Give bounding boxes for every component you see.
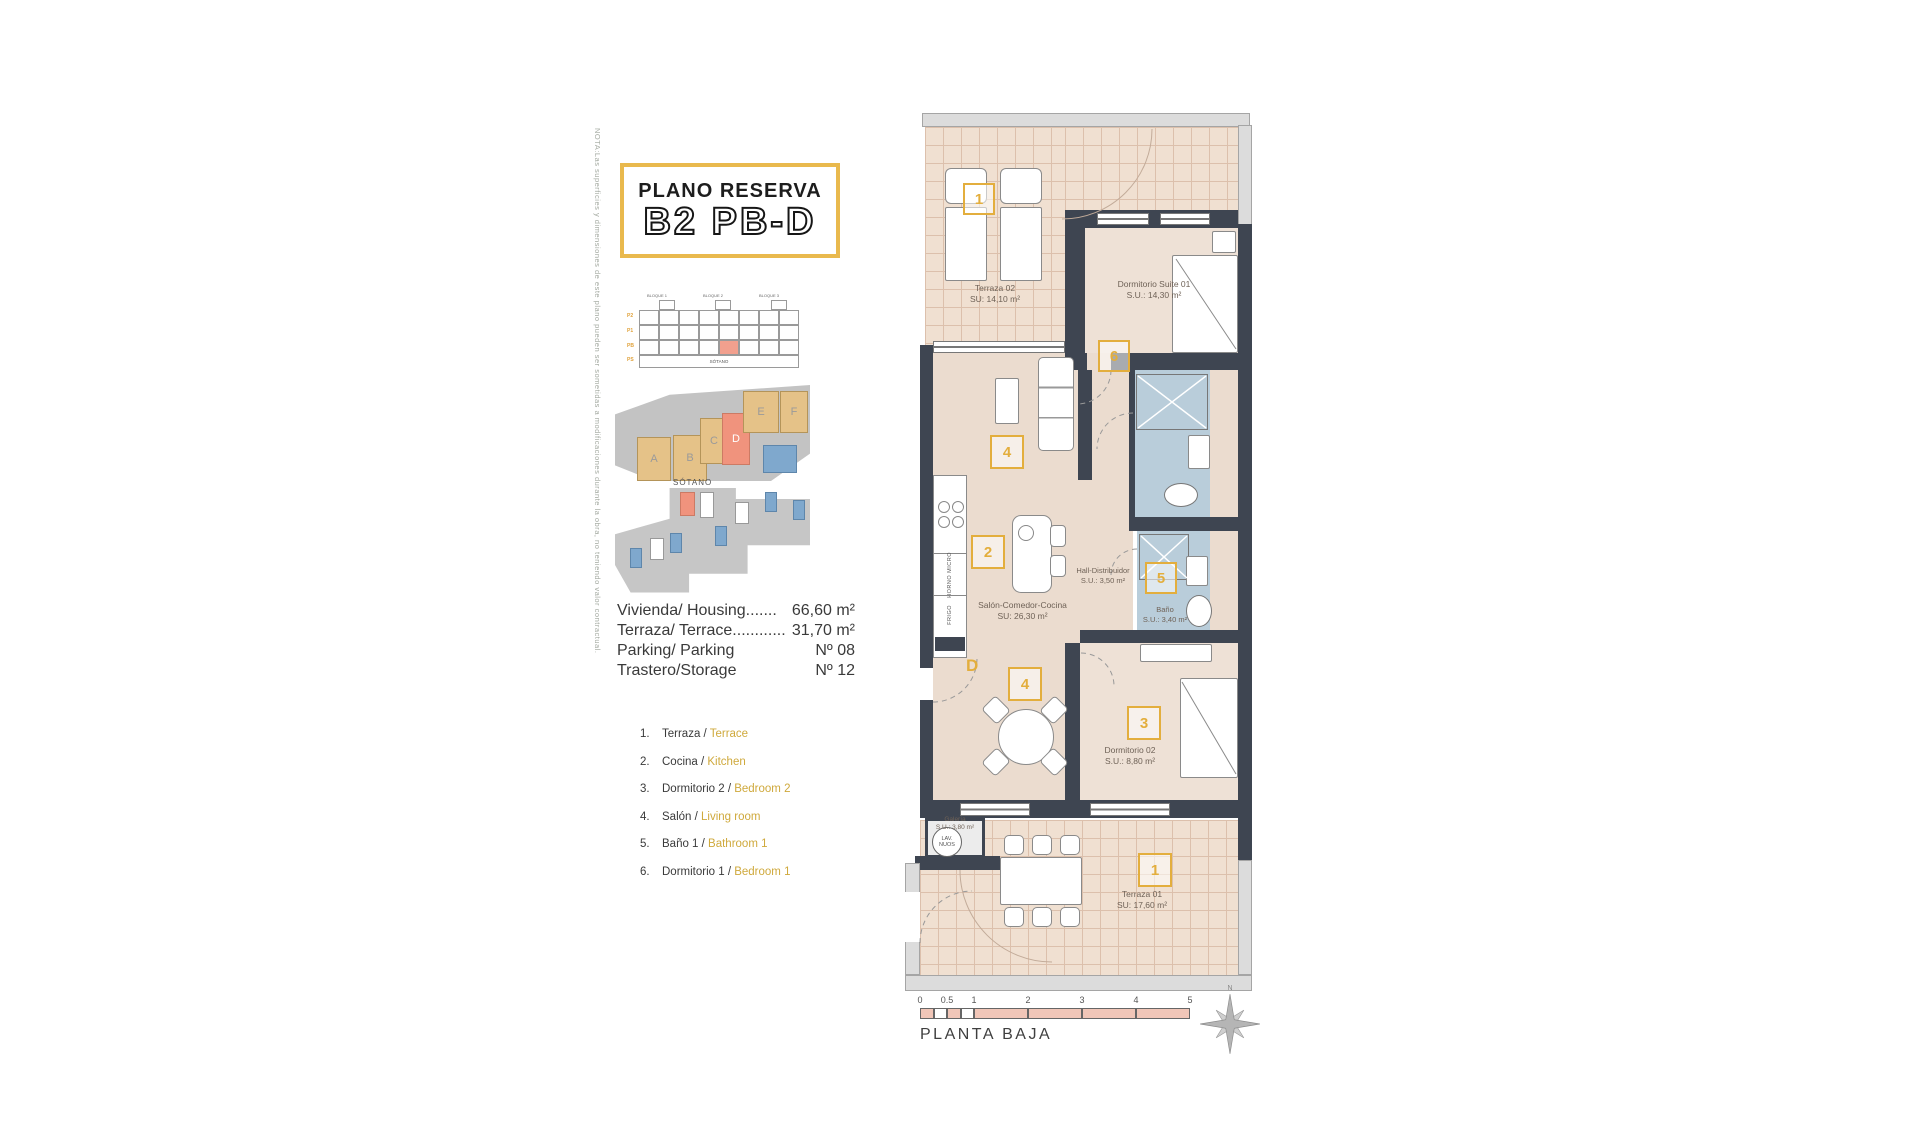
elevation-unit-cell <box>779 340 799 355</box>
elevation-unit-cell <box>659 340 679 355</box>
wall-right <box>1238 224 1252 860</box>
terrace-chair <box>1032 835 1052 855</box>
kitchen-island <box>1012 515 1052 593</box>
terrace-chair <box>1004 835 1024 855</box>
title-box: PLANO RESERVA B2 PB-D <box>620 163 840 258</box>
elevation-unit-cell <box>639 325 659 340</box>
tag-bath: 5 <box>1145 562 1177 594</box>
scale-tick-label: 2 <box>1025 995 1030 1005</box>
entrance-door-label: D <box>966 656 978 676</box>
info-row: Parking/ ParkingNº 08 <box>617 641 855 661</box>
legend-item: 6.Dormitorio 1 / Bedroom 1 <box>640 866 850 878</box>
wall-galeria <box>915 856 1000 870</box>
sink-1 <box>1188 435 1210 469</box>
elevation-unit-cell <box>719 310 739 325</box>
entrance-door-gap <box>920 668 933 700</box>
elevation-diagram: BLOQUE 1BLOQUE 2BLOQUE 3P2P1PBPSSÓTANO <box>625 293 800 373</box>
room-label-dorm02: Dormitorio 02S.U.: 8,80 m² <box>1080 745 1180 767</box>
shower-1 <box>1136 374 1208 430</box>
elevation-unit-cell <box>739 325 759 340</box>
oven-micro-label: HORNO MICRO <box>933 553 967 596</box>
sun-lounger <box>1000 168 1042 204</box>
terrace-parapet-right-upper <box>1238 125 1252 225</box>
suite-bed <box>1172 255 1238 353</box>
info-row: Trastero/StorageNº 12 <box>617 661 855 681</box>
terrace-02-floor-strip <box>1065 127 1238 210</box>
terrace-gate-gap <box>905 892 920 942</box>
scale-tick-label: 0.5 <box>941 995 954 1005</box>
elevation-unit-cell <box>679 310 699 325</box>
wall-hall <box>1078 370 1092 480</box>
tag-terraza01: 1 <box>1138 853 1172 887</box>
elevation-block-label: BLOQUE 3 <box>759 293 779 298</box>
legend-item: 2.Cocina / Kitchen <box>640 756 850 768</box>
micro-label: MICRO <box>947 552 953 573</box>
compass-icon <box>1198 992 1262 1056</box>
elevation-block-label: BLOQUE 2 <box>703 293 723 298</box>
kitchen-cabinet <box>935 637 965 651</box>
wall-bedroom02-left <box>1065 643 1080 800</box>
tag-suite: 6 <box>1098 340 1130 372</box>
room-label-bano: BañoS.U.: 3,40 m² <box>1125 605 1205 625</box>
site-block-f: F <box>780 391 808 433</box>
scale-tick-label: 5 <box>1187 995 1192 1005</box>
terrace-table <box>1000 857 1082 905</box>
unit-code: B2 PB-D <box>643 203 816 241</box>
elevation-block-label: BLOQUE 1 <box>647 293 667 298</box>
compass-north-label: N <box>1198 985 1262 992</box>
suite-closet <box>1212 231 1236 253</box>
dining-window <box>960 803 1030 816</box>
elevation-unit-cell <box>779 310 799 325</box>
legend-item: 1.Terraza / Terrace <box>640 728 850 740</box>
floor-name: PLANTA BAJA <box>920 1026 1052 1044</box>
tag-dorm02: 3 <box>1127 706 1161 740</box>
info-row: Terraza/ Terrace............31,70 m² <box>617 621 855 641</box>
basement-label: SÓTANO <box>673 478 712 487</box>
wall-left <box>920 345 933 818</box>
elevation-basement-cell: SÓTANO <box>639 355 799 368</box>
housing-info: Vivienda/ Housing.......66,60 m²Terraza/… <box>617 601 855 681</box>
scale-segment <box>947 1008 961 1019</box>
legend-item: 3.Dormitorio 2 / Bedroom 2 <box>640 783 850 795</box>
sun-lounger <box>945 207 987 281</box>
elevation-unit-cell <box>739 310 759 325</box>
tag-terraza02: 1 <box>963 183 995 215</box>
living-window <box>933 341 1065 353</box>
room-label-terraza01: Terraza 01SU: 17,60 m² <box>1092 889 1192 911</box>
legend-item: 4.Salón / Living room <box>640 811 850 823</box>
terrace-chair <box>1032 907 1052 927</box>
island-sink <box>1018 525 1034 541</box>
wall-bath-left <box>1129 370 1135 531</box>
room-label-salon: Salón-Comedor-CocinaSU: 26,30 m² <box>955 600 1090 622</box>
suite-window <box>1097 213 1149 225</box>
elevation-unit-cell <box>759 340 779 355</box>
room-label-suite: Dormitorio Suite 01S.U.: 14,30 m² <box>1088 279 1220 301</box>
scale-segment <box>1136 1008 1190 1019</box>
elevation-tower <box>715 300 731 310</box>
elevation-floor-label: PB <box>627 343 634 349</box>
basement-plan: SÓTANO <box>615 478 810 600</box>
terrace-chair <box>1060 907 1080 927</box>
elevation-unit-cell <box>699 340 719 355</box>
terrace-chair <box>1060 835 1080 855</box>
scale-segment <box>920 1008 934 1019</box>
washer-label: NUOS <box>939 842 955 848</box>
elevation-floor-label: P2 <box>627 313 633 319</box>
parking-car <box>670 533 682 553</box>
parking-car <box>715 526 727 546</box>
site-block-a: A <box>637 437 671 481</box>
elevation-unit-cell <box>699 325 719 340</box>
parking-cell <box>735 502 749 524</box>
parking-car <box>765 492 777 512</box>
elevation-unit-cell <box>739 340 759 355</box>
suite-window <box>1160 213 1210 225</box>
tag-dining: 4 <box>1008 667 1042 701</box>
elevation-unit-cell-highlight <box>719 340 739 355</box>
hob-burner <box>952 516 964 528</box>
sink-2 <box>1186 556 1208 586</box>
tag-kitchen: 2 <box>971 535 1005 569</box>
room-label-terraza02: Terraza 02SU: 14,10 m² <box>935 283 1055 305</box>
site-pool <box>763 445 797 473</box>
elevation-unit-cell <box>759 325 779 340</box>
scale-tick-label: 1 <box>971 995 976 1005</box>
wall-suite-left <box>1065 210 1085 370</box>
tv-unit <box>995 378 1019 424</box>
elevation-unit-cell <box>699 310 719 325</box>
scale-segment <box>1082 1008 1136 1019</box>
legend-item: 5.Baño 1 / Bathroom 1 <box>640 838 850 850</box>
bath-side-floor <box>1210 370 1238 643</box>
elevation-tower <box>771 300 787 310</box>
elevation-floor-label: P1 <box>627 328 633 334</box>
bedroom02-closet <box>1140 644 1212 662</box>
fridge-text: FRIGO <box>947 605 953 625</box>
site-block-e: E <box>743 391 779 433</box>
parking-cell <box>700 492 714 518</box>
toilet-1 <box>1164 483 1198 507</box>
bedroom02-window <box>1090 803 1170 816</box>
parking-cell <box>650 538 664 560</box>
site-plan: A B C D E F <box>615 385 810 483</box>
wall-bath-mid <box>1129 517 1238 531</box>
room-label-galeria: GaleríaS.U.: 3,80 m² <box>918 816 992 833</box>
legal-note: NOTA:Las superficies y dimensiones de es… <box>593 128 602 653</box>
elevation-unit-cell <box>659 325 679 340</box>
scale-tick-label: 0 <box>917 995 922 1005</box>
tag-living: 4 <box>990 435 1024 469</box>
bedroom02-bed <box>1180 678 1238 778</box>
scale-tick-label: 4 <box>1133 995 1138 1005</box>
scale-segment <box>974 1008 1028 1019</box>
bar-stool <box>1050 525 1066 547</box>
terrace-parapet-top <box>922 113 1250 127</box>
elevation-unit-cell <box>719 325 739 340</box>
elevation-unit-cell <box>639 310 659 325</box>
elevation-floor-label: PS <box>627 357 634 363</box>
elevation-unit-cell <box>679 325 699 340</box>
compass: N <box>1198 985 1262 1057</box>
sofa <box>1038 357 1074 451</box>
hob-burner <box>938 516 950 528</box>
scale-segment <box>934 1008 948 1019</box>
elevation-unit-cell <box>679 340 699 355</box>
scale-segment <box>1028 1008 1082 1019</box>
hob-burner <box>938 501 950 513</box>
elevation-unit-cell <box>779 325 799 340</box>
hob-burner <box>952 501 964 513</box>
terrace-chair <box>1004 907 1024 927</box>
floor-plan: LAV. NUOS HORNO MICRO FRIGO <box>900 113 1252 993</box>
legend-list: 1.Terraza / Terrace2.Cocina / Kitchen3.D… <box>640 728 850 893</box>
parking-car <box>793 500 805 520</box>
scale-bar: 00.512345 <box>920 995 1192 1025</box>
plan-title: PLANO RESERVA <box>638 180 821 203</box>
scale-segment <box>961 1008 975 1019</box>
elevation-unit-cell <box>759 310 779 325</box>
elevation-tower <box>659 300 675 310</box>
terrace-parapet-right-lower <box>1238 860 1252 975</box>
wall-bath-bottom <box>1080 630 1238 643</box>
parking-car <box>630 548 642 568</box>
sheet: NOTA:Las superficies y dimensiones de es… <box>0 0 1920 1140</box>
elevation-unit-cell <box>639 340 659 355</box>
info-row: Vivienda/ Housing.......66,60 m² <box>617 601 855 621</box>
scale-tick-label: 3 <box>1079 995 1084 1005</box>
sun-lounger <box>1000 207 1042 281</box>
elevation-unit-cell <box>659 310 679 325</box>
room-label-hall: Hall-DistribuidorS.U.: 3,50 m² <box>1058 566 1148 586</box>
parking-highlight <box>680 492 695 516</box>
